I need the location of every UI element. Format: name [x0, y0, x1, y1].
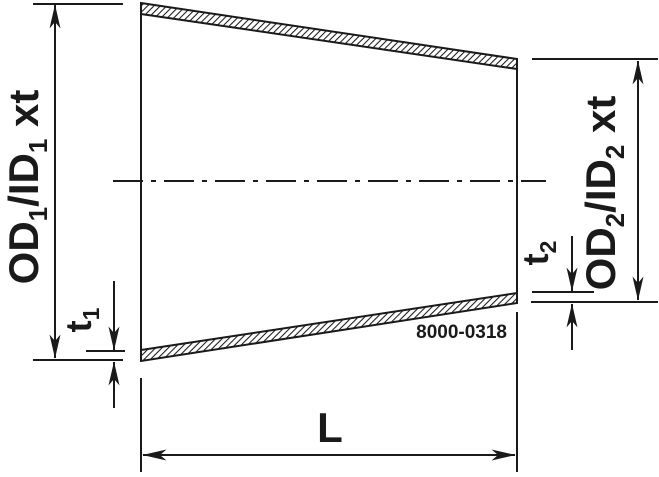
od1-label: OD1/ID1 xt — [0, 90, 53, 285]
technical-drawing-page: OD1/ID1 xt t1 OD2/ID2 xt t2 — [0, 0, 659, 477]
reducer-dimension-drawing: OD1/ID1 xt t1 OD2/ID2 xt t2 — [0, 0, 659, 477]
part-number: 8000-0318 — [416, 322, 507, 343]
length-label: L — [317, 404, 343, 451]
od2-label: OD2/ID2 xt — [577, 96, 630, 291]
